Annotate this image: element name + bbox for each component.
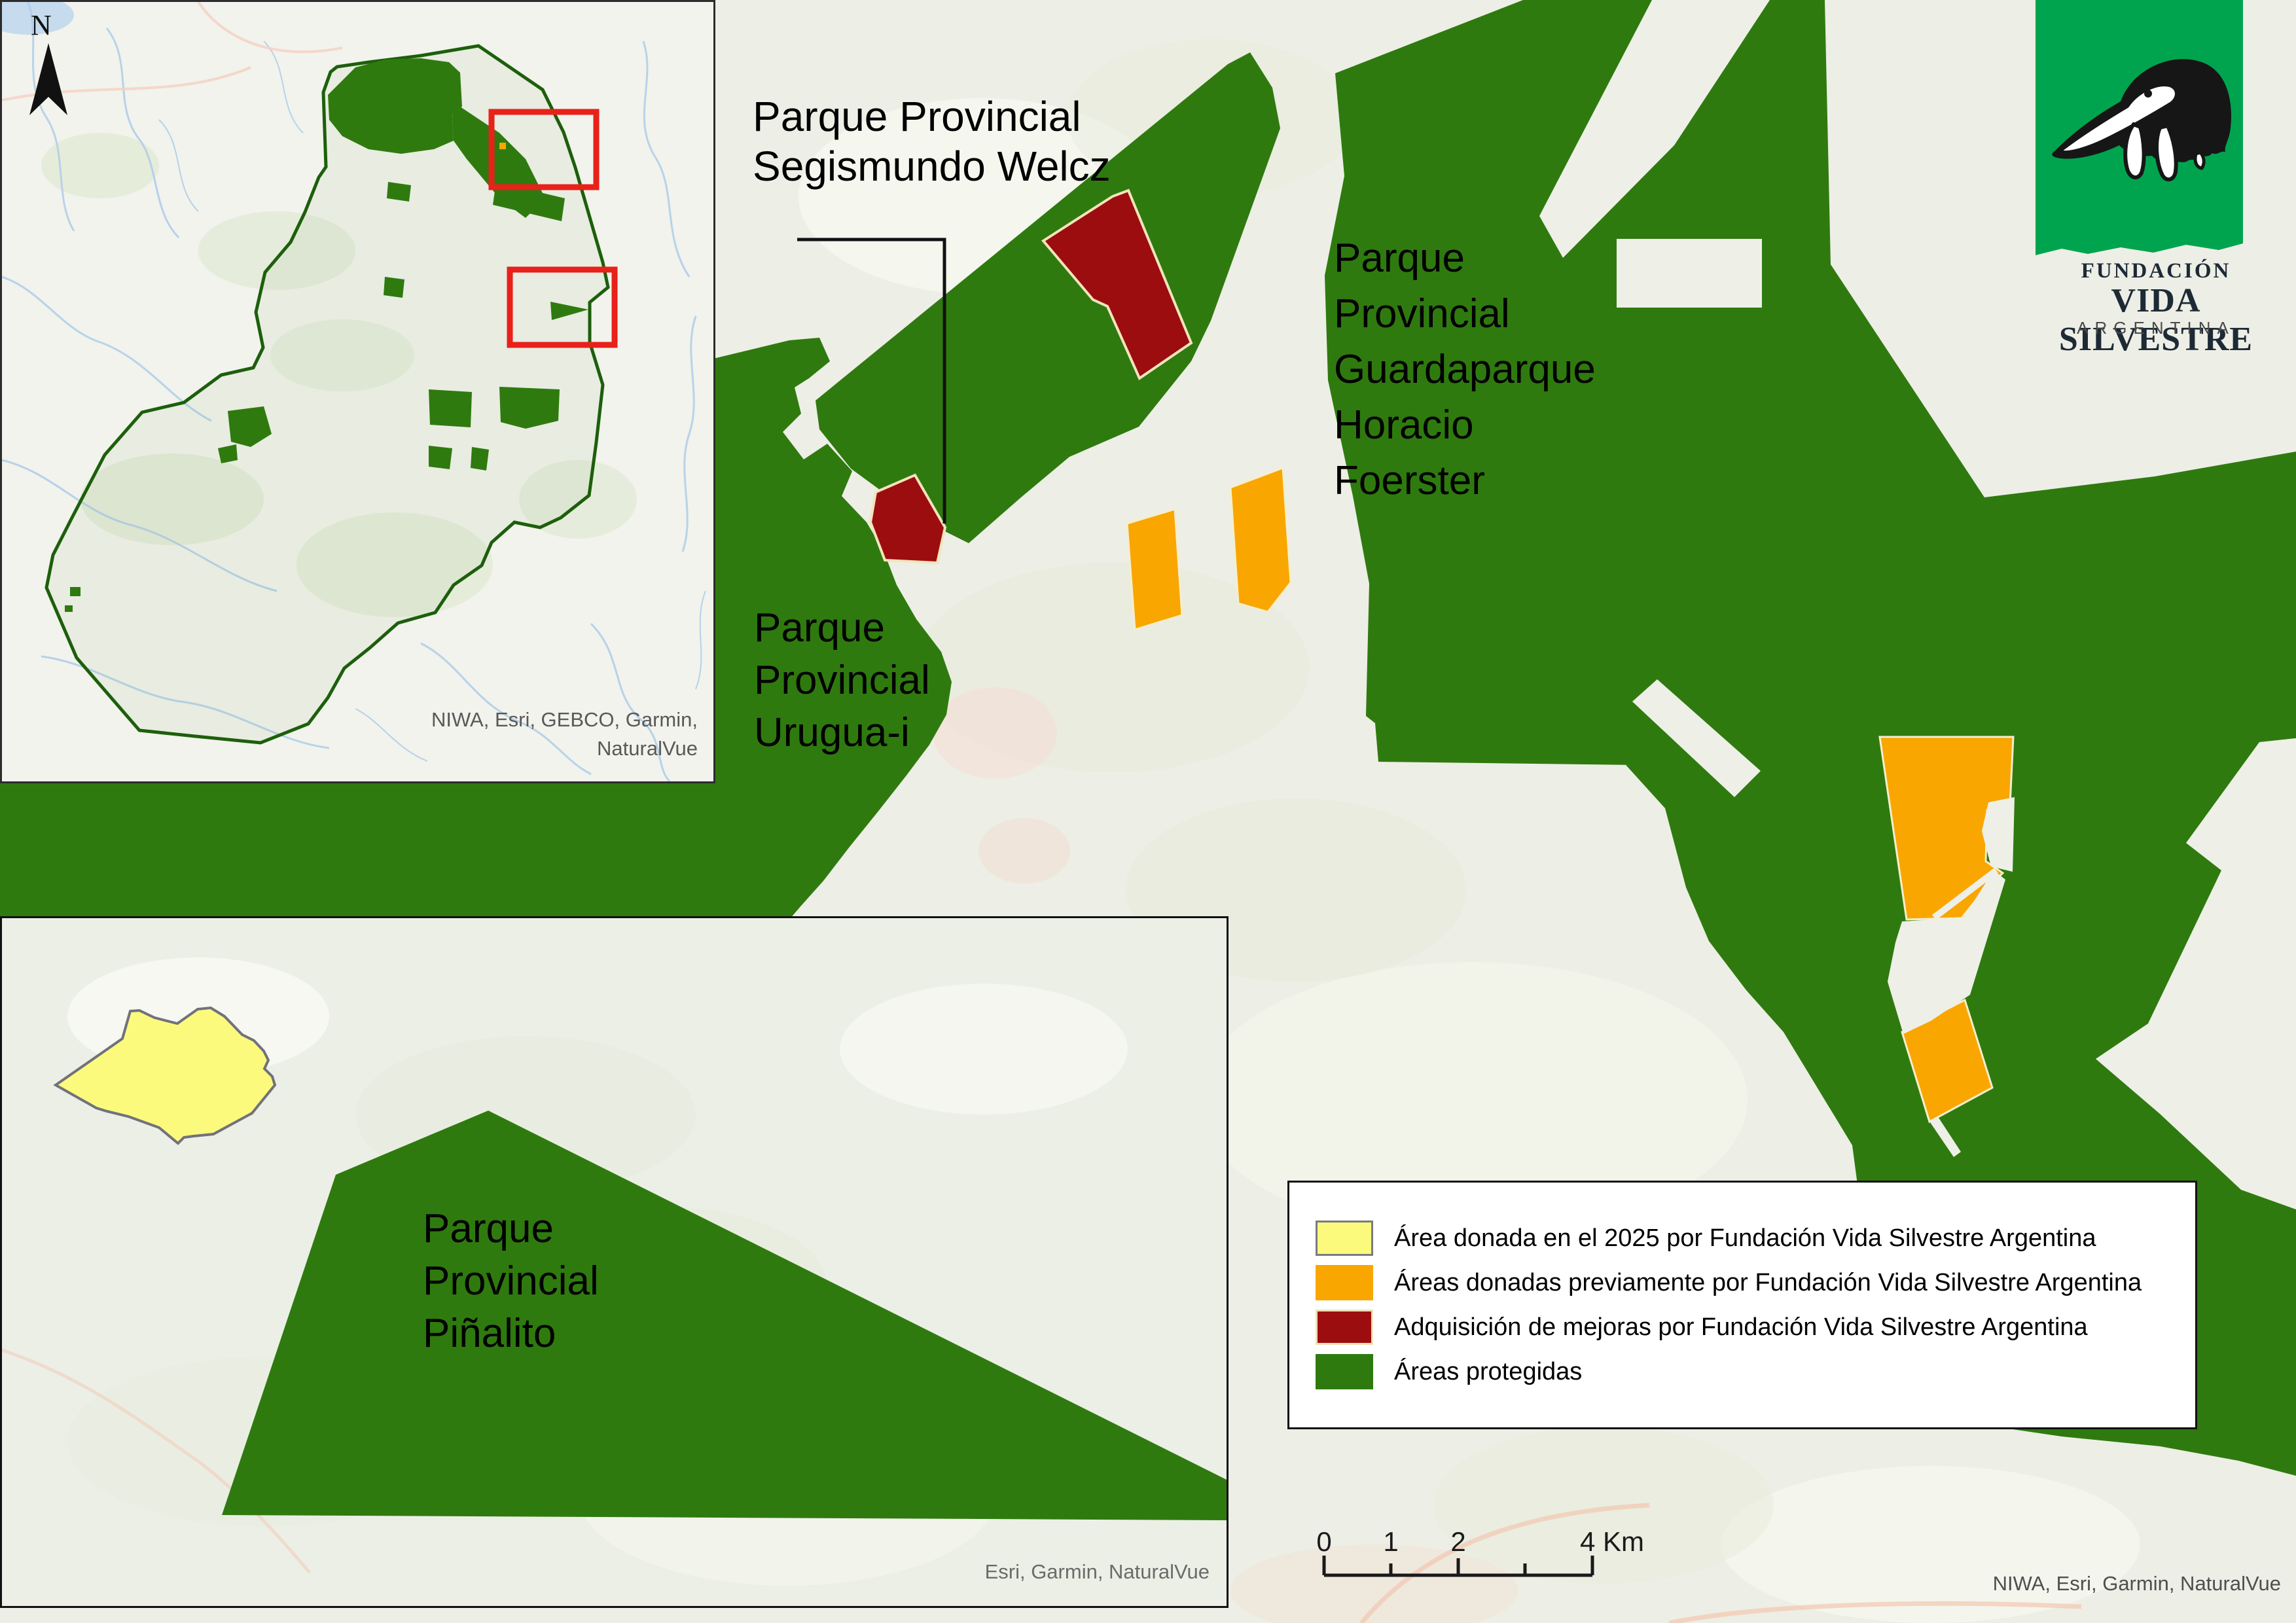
label-line: Provincial: [423, 1255, 599, 1308]
legend-item: Áreas donadas previamente por Fundación …: [1316, 1265, 2169, 1300]
legend-item: Área donada en el 2025 por Fundación Vid…: [1316, 1221, 2169, 1256]
pinalito-inset-canvas: [2, 918, 1227, 1606]
main-map-attribution: NIWA, Esri, Garmin, NaturalVue: [1993, 1569, 2281, 1598]
overview-inset-map: N NIWA, Esri, GEBCO, Garmin, NaturalVue: [0, 0, 715, 783]
logo-line-argentina: ARGENTINA: [2016, 318, 2296, 338]
cutin-block: [1617, 239, 1762, 308]
label-parque-uruguai: Parque Provincial Urugua-i: [754, 602, 930, 759]
legend-label: Áreas donadas previamente por Fundación …: [1394, 1269, 2142, 1297]
overview-attribution: NIWA, Esri, GEBCO, Garmin, NaturalVue: [431, 705, 698, 763]
legend-item: Áreas protegidas: [1316, 1354, 2169, 1389]
label-line: Parque: [423, 1203, 599, 1255]
north-arrow-icon: [19, 42, 79, 120]
map-export: Parque Provincial Segismundo Welcz Parqu…: [0, 0, 2296, 1623]
label-parque-pinalito: Parque Provincial Piñalito: [423, 1203, 599, 1360]
scale-tick-label: 0: [1316, 1526, 1331, 1558]
legend-label: Áreas protegidas: [1394, 1358, 1582, 1386]
map-legend: Área donada en el 2025 por Fundación Vid…: [1287, 1181, 2197, 1429]
fvsa-logo: FUNDACIÓN VIDA SILVESTRE ARGENTINA: [2016, 0, 2296, 366]
pinalito-attribution: Esri, Garmin, NaturalVue: [985, 1558, 1210, 1586]
label-line: Parque Provincial: [753, 92, 1111, 141]
label-line: Foerster: [1334, 453, 1596, 508]
label-line: Parque: [1334, 230, 1596, 286]
label-line: Provincial: [754, 654, 930, 707]
label-line: Urugua-i: [754, 707, 930, 759]
legend-label: Área donada en el 2025 por Fundación Vid…: [1394, 1224, 2096, 1253]
label-line: Guardaparque: [1334, 342, 1596, 397]
legend-swatch-green: [1316, 1354, 1373, 1389]
logo-line-fundacion: FUNDACIÓN: [2016, 259, 2296, 283]
overview-orange-dot: [499, 143, 506, 149]
label-line: Provincial: [1334, 286, 1596, 342]
legend-swatch-orange: [1316, 1265, 1373, 1300]
legend-item: Adquisición de mejoras por Fundación Vid…: [1316, 1310, 2169, 1345]
label-parque-foerster: Parque Provincial Guardaparque Horacio F…: [1334, 230, 1596, 508]
north-arrow: N: [19, 9, 79, 120]
scale-tick-label: 4 Km: [1580, 1526, 1644, 1558]
legend-label: Adquisición de mejoras por Fundación Vid…: [1394, 1313, 2088, 1342]
label-line: Horacio: [1334, 397, 1596, 453]
label-parque-segismundo-welcz: Parque Provincial Segismundo Welcz: [753, 92, 1111, 191]
scale-tick-label: 2: [1450, 1526, 1465, 1558]
scale-tick-label: 1: [1383, 1526, 1398, 1558]
legend-swatch-red: [1316, 1310, 1373, 1345]
parcel-orange-center-right: [1230, 468, 1291, 612]
label-line: Segismundo Welcz: [753, 141, 1111, 191]
pinalito-inset-map: Esri, Garmin, NaturalVue: [0, 916, 1229, 1608]
north-label: N: [31, 9, 79, 42]
parcel-orange-center-left: [1127, 509, 1182, 630]
label-line: Parque: [754, 602, 930, 654]
label-line: Piñalito: [423, 1308, 599, 1360]
legend-swatch-yellow: [1316, 1221, 1373, 1256]
overview-inset-canvas: [2, 2, 713, 781]
